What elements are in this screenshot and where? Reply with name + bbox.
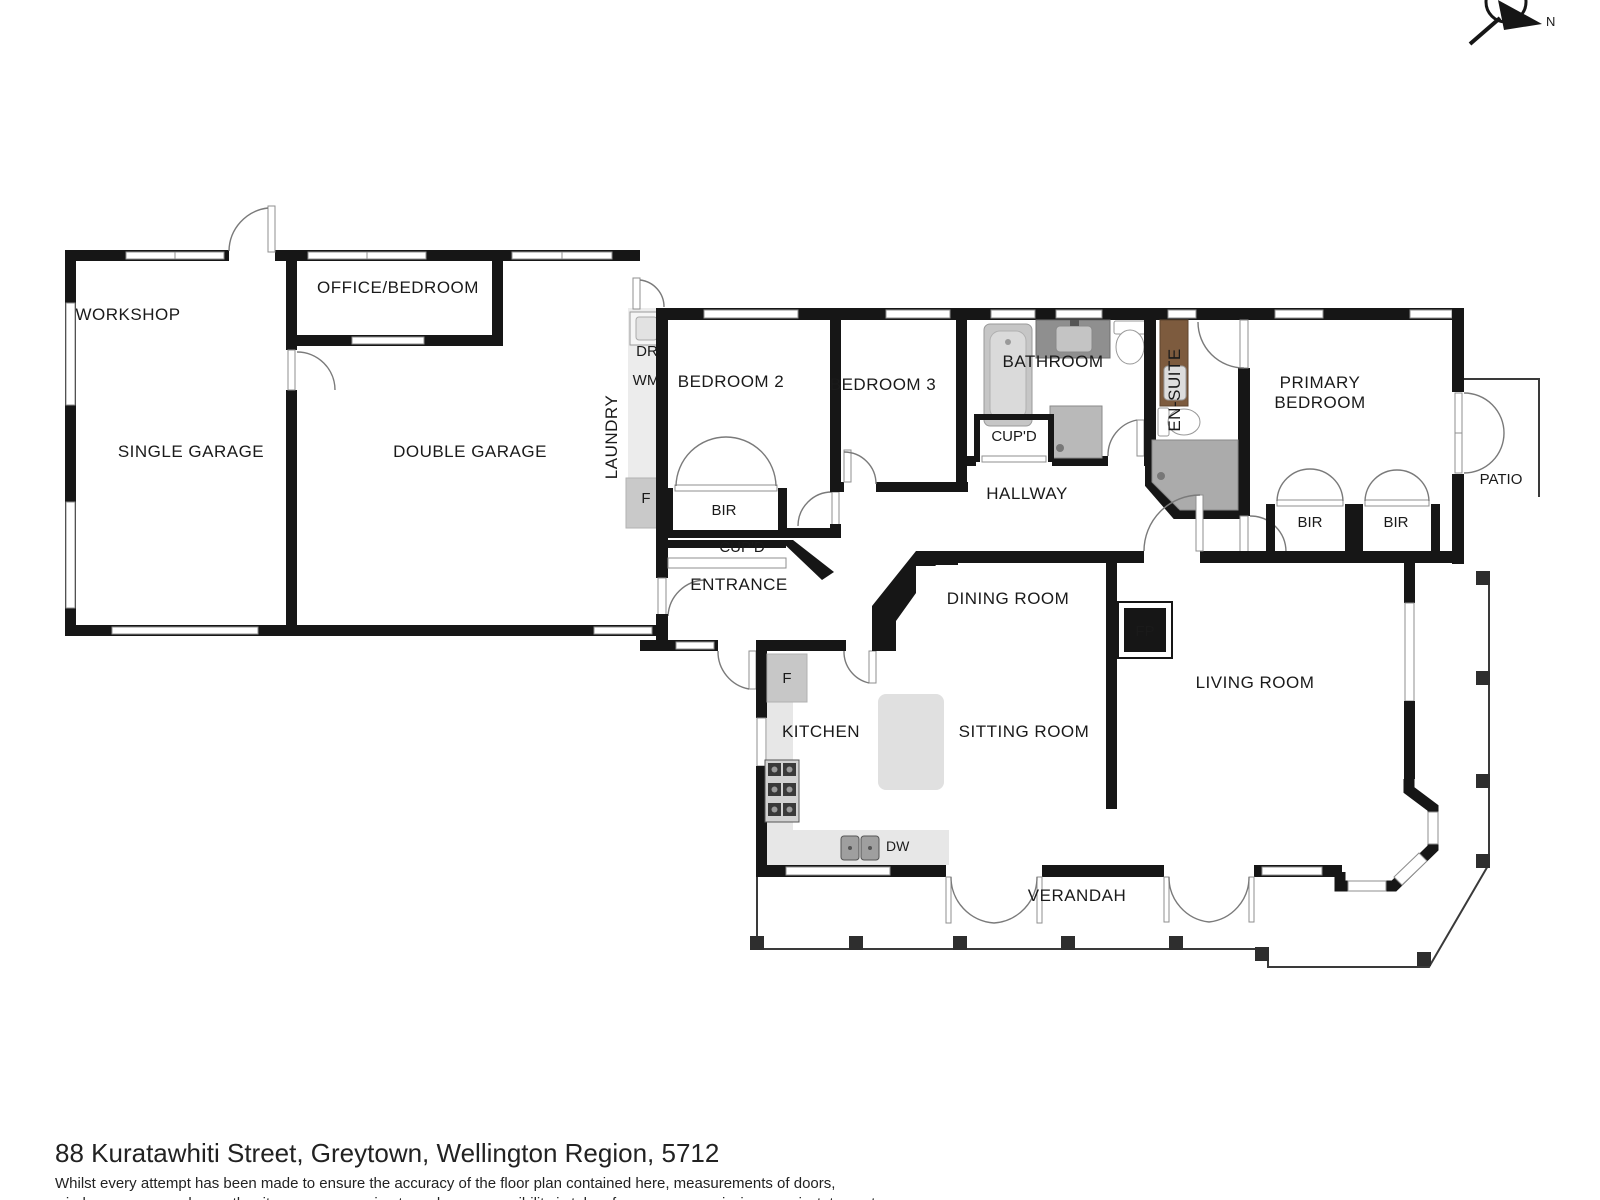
double-garage-label: DOUBLE GARAGE xyxy=(393,442,547,461)
bedroom2-label: BEDROOM 2 xyxy=(678,372,785,391)
kitchen: F DW KITCHEN xyxy=(756,648,949,876)
front-door xyxy=(658,578,666,616)
entrance-cupboard-doors xyxy=(668,558,786,568)
single-garage-label: SINGLE GARAGE xyxy=(118,442,264,461)
verandah-label: VERANDAH xyxy=(1028,886,1126,905)
patio-label: PATIO xyxy=(1480,471,1523,488)
kitchen-island xyxy=(878,694,944,790)
bathroom-label: BATHROOM xyxy=(1003,352,1104,371)
kitchen-fridge-label: F xyxy=(782,670,791,687)
kitchen-label: KITCHEN xyxy=(782,722,860,741)
bathtub-icon xyxy=(984,324,1032,426)
living-verandah-door-left xyxy=(1164,877,1169,922)
north-arrow-icon: N xyxy=(1470,0,1555,44)
dining-room: DINING ROOM xyxy=(872,551,1069,651)
primary-bedroom-label-2: BEDROOM xyxy=(1274,393,1365,412)
bathroom-door xyxy=(1137,420,1144,456)
living-room: FP LIVING ROOM xyxy=(1106,551,1438,891)
primary-bir2-doors xyxy=(1365,500,1429,506)
sitting-verandah-door-left xyxy=(946,877,951,923)
patio-door-right xyxy=(1455,433,1462,473)
address-title: 88 Kuratawhiti Street, Greytown, Welling… xyxy=(55,1138,719,1168)
bedroom2: BEDROOM 2 BIR xyxy=(664,308,841,538)
primary-bedroom: PRIMARY BEDROOM BIR BIR xyxy=(1240,373,1440,552)
primary-bedroom-label-1: PRIMARY xyxy=(1280,373,1361,392)
disclaimer-line2: windows, rooms and any other items are a… xyxy=(54,1195,880,1200)
entrance-label: ENTRANCE xyxy=(690,575,788,594)
bathroom-toilet-icon xyxy=(1114,321,1146,364)
workshop-label: WORKSHOP xyxy=(75,305,180,324)
entrance-dining-door xyxy=(869,651,876,683)
laundry: DR WM F LAUNDRY xyxy=(602,278,664,528)
hall-cupd-label: CUP'D xyxy=(991,428,1037,445)
patio: PATIO xyxy=(1464,379,1539,497)
bathroom-shower-icon xyxy=(1050,406,1102,458)
floorplan-page: WORKSHOP SINGLE GARAGE OFFICE/BEDROOM DO… xyxy=(0,0,1600,1200)
primary-bir1-label: BIR xyxy=(1297,514,1322,531)
bedroom3-door xyxy=(844,450,851,482)
laundry-label: LAUNDRY xyxy=(602,395,621,479)
garage-block: WORKSHOP SINGLE GARAGE OFFICE/BEDROOM DO… xyxy=(65,206,665,636)
ensuite: EN-SUITE xyxy=(1144,308,1250,516)
bedroom2-bir-doors xyxy=(675,485,777,491)
primary-bir1-doors xyxy=(1277,500,1343,506)
hall-cupboard-doors xyxy=(982,456,1046,462)
stove-icon xyxy=(765,760,799,822)
bedroom2-bir-label: BIR xyxy=(711,502,736,519)
bedroom3: BEDROOM 3 xyxy=(830,308,968,492)
bedroom2-door xyxy=(832,492,839,526)
bathroom: CUP'D BATHROOM xyxy=(956,320,1158,466)
office-bedroom-label: OFFICE/BEDROOM xyxy=(317,278,479,297)
workshop-exterior-door xyxy=(268,206,275,252)
disclaimer-line1: Whilst every attempt has been made to en… xyxy=(55,1175,835,1192)
patio-door-left xyxy=(1455,393,1462,433)
dining-room-label: DINING ROOM xyxy=(947,589,1070,608)
bedroom3-label: BEDROOM 3 xyxy=(830,375,937,394)
floorplan-canvas: WORKSHOP SINGLE GARAGE OFFICE/BEDROOM DO… xyxy=(0,0,1600,1200)
entrance-cupd-label: CUP'D xyxy=(719,539,765,556)
living-room-label: LIVING ROOM xyxy=(1196,673,1315,692)
primary-bedroom-door xyxy=(1240,516,1248,552)
north-label: N xyxy=(1546,14,1555,29)
dishwasher-label: DW xyxy=(886,838,910,854)
ensuite-door xyxy=(1240,320,1248,368)
hallway-label: HALLWAY xyxy=(986,484,1068,503)
living-verandah-door-right xyxy=(1249,877,1254,922)
footer: 88 Kuratawhiti Street, Greytown, Welling… xyxy=(54,1138,880,1200)
fireplace-label: FP xyxy=(1135,623,1154,640)
sitting-room-label: SITTING ROOM xyxy=(959,722,1090,741)
laundry-freezer-label: F xyxy=(641,490,650,507)
garage-divider-door xyxy=(288,350,295,390)
washing-machine-label: WM xyxy=(633,372,660,389)
hallway-living-door xyxy=(1196,495,1203,551)
ensuite-label: EN-SUITE xyxy=(1165,348,1184,431)
laundry-exterior-door xyxy=(633,278,640,309)
dryer-label: DR xyxy=(636,343,658,360)
primary-bir2-label: BIR xyxy=(1383,514,1408,531)
fireplace-icon: FP xyxy=(1118,602,1172,658)
entrance-kitchen-door xyxy=(749,651,756,689)
